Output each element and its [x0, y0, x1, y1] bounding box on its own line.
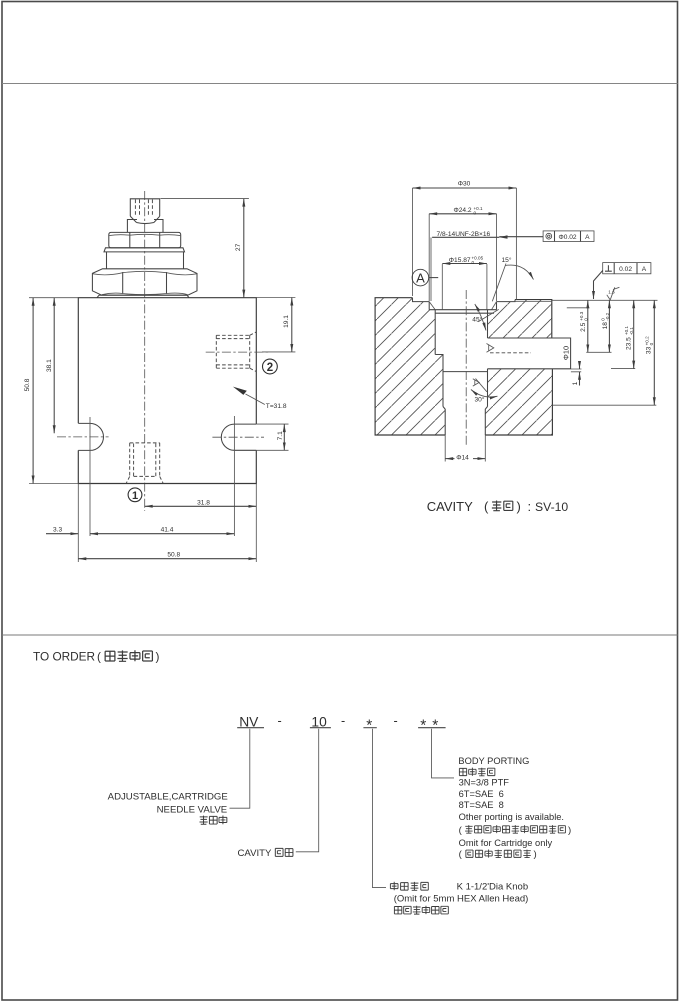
svg-text:-0.1: -0.1	[629, 327, 634, 335]
svg-text:0.02: 0.02	[619, 266, 632, 273]
svg-text:-0.2: -0.2	[605, 312, 610, 320]
svg-text:Φ15.87: Φ15.87	[449, 257, 471, 264]
svg-text:19.1: 19.1	[283, 315, 290, 328]
svg-text:*: *	[432, 718, 438, 735]
svg-text:15°: 15°	[502, 256, 512, 264]
svg-text:0: 0	[649, 342, 654, 345]
svg-text:CAVITY: CAVITY	[427, 499, 473, 514]
svg-text:50.8: 50.8	[24, 378, 31, 391]
svg-text:): )	[534, 849, 537, 860]
svg-text:-: -	[278, 714, 282, 728]
svg-text:BODY PORTING: BODY PORTING	[458, 756, 529, 766]
svg-text:Φ30: Φ30	[458, 181, 471, 188]
svg-text:27: 27	[235, 243, 242, 251]
svg-text:A: A	[642, 266, 647, 273]
svg-text:Φ0.02: Φ0.02	[558, 234, 576, 241]
svg-text:8T=SAE 8: 8T=SAE 8	[459, 800, 504, 810]
svg-text:33: 33	[646, 346, 653, 354]
svg-text:23.5: 23.5	[625, 337, 632, 350]
svg-text:41.4: 41.4	[161, 527, 174, 534]
svg-text:T=31.8: T=31.8	[266, 403, 287, 410]
svg-text:Other porting is available.: Other porting is available.	[459, 812, 564, 822]
svg-text:38.1: 38.1	[46, 359, 53, 372]
svg-text:1.6: 1.6	[608, 289, 615, 294]
svg-text:TO ORDER: TO ORDER	[33, 650, 95, 664]
svg-text:2.5: 2.5	[580, 322, 587, 331]
svg-text:3.3: 3.3	[53, 527, 62, 534]
svg-text:1: 1	[572, 381, 579, 385]
svg-text:ADJUSTABLE,CARTRIDGE: ADJUSTABLE,CARTRIDGE	[108, 792, 228, 803]
svg-text:18: 18	[602, 322, 609, 330]
svg-text:(Omit for 5mm HEX Allen Head): (Omit for 5mm HEX Allen Head)	[394, 894, 529, 905]
svg-text:): )	[517, 499, 521, 514]
svg-text:Φ14: Φ14	[456, 455, 469, 462]
svg-text:*: *	[420, 718, 426, 735]
svg-text:0: 0	[472, 260, 475, 265]
svg-text:SV-10: SV-10	[535, 500, 568, 514]
svg-text:(: (	[484, 499, 489, 514]
svg-text:Φ24.2: Φ24.2	[454, 207, 472, 214]
svg-text:7.1: 7.1	[277, 431, 284, 440]
svg-text:3N=3/8 PTF: 3N=3/8 PTF	[459, 778, 510, 788]
svg-text:-: -	[341, 714, 345, 728]
svg-text:31.8: 31.8	[197, 499, 210, 506]
svg-text:0: 0	[584, 318, 589, 321]
svg-text:6T=SAE 6: 6T=SAE 6	[459, 789, 504, 799]
svg-text:): )	[156, 650, 160, 664]
svg-text:7/8-14UNF-2B×16: 7/8-14UNF-2B×16	[437, 231, 491, 238]
svg-text:-: -	[394, 714, 398, 728]
svg-text:Φ10: Φ10	[562, 346, 571, 360]
svg-text:*: *	[366, 718, 372, 735]
svg-text:Omit for Cartridge only: Omit for Cartridge only	[459, 838, 553, 848]
svg-text:0: 0	[474, 211, 477, 216]
svg-text:CAVITY: CAVITY	[238, 848, 273, 859]
svg-text:2: 2	[267, 362, 273, 374]
svg-text:50.8: 50.8	[167, 552, 180, 559]
svg-text::: :	[528, 499, 532, 514]
svg-text:30°: 30°	[475, 396, 485, 404]
svg-text:A: A	[416, 270, 425, 285]
svg-text:1: 1	[132, 490, 138, 502]
svg-text:K 1-1/2'Dia Knob: K 1-1/2'Dia Knob	[457, 881, 529, 892]
svg-text:A: A	[585, 234, 590, 241]
svg-text:NEEDLE VALVE: NEEDLE VALVE	[157, 804, 228, 815]
svg-text:): )	[568, 825, 571, 836]
svg-text:(: (	[97, 650, 101, 664]
